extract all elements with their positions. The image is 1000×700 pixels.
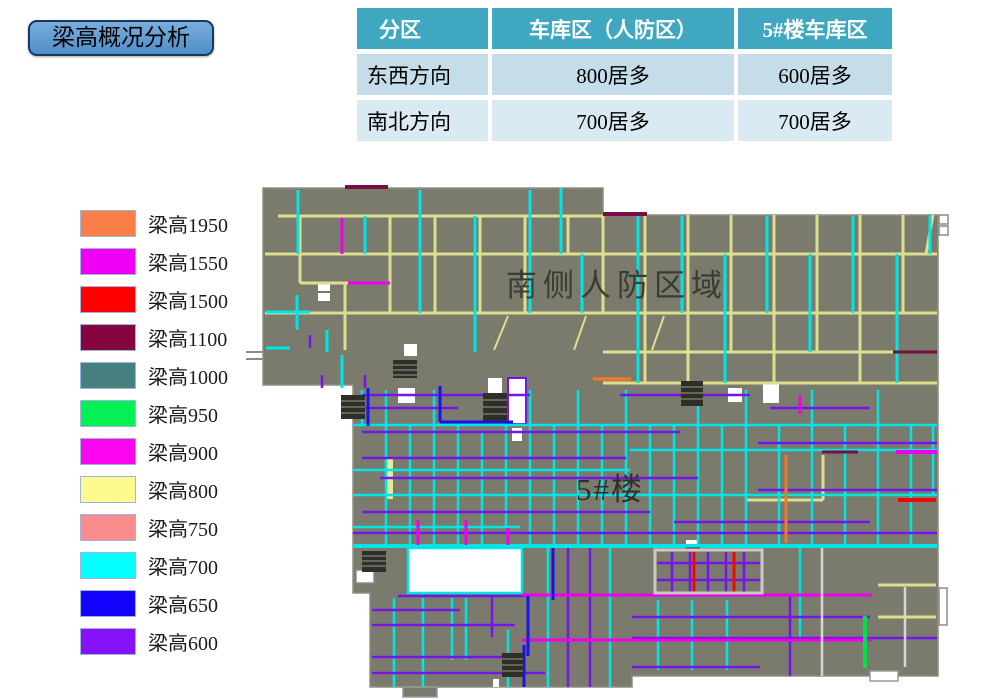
floor-plan-diagram: 南侧人防区域 5#楼 (0, 0, 1000, 700)
building5-label: 5#楼 (576, 472, 644, 507)
civil-defense-zone-label: 南侧人防区域 (506, 268, 728, 303)
